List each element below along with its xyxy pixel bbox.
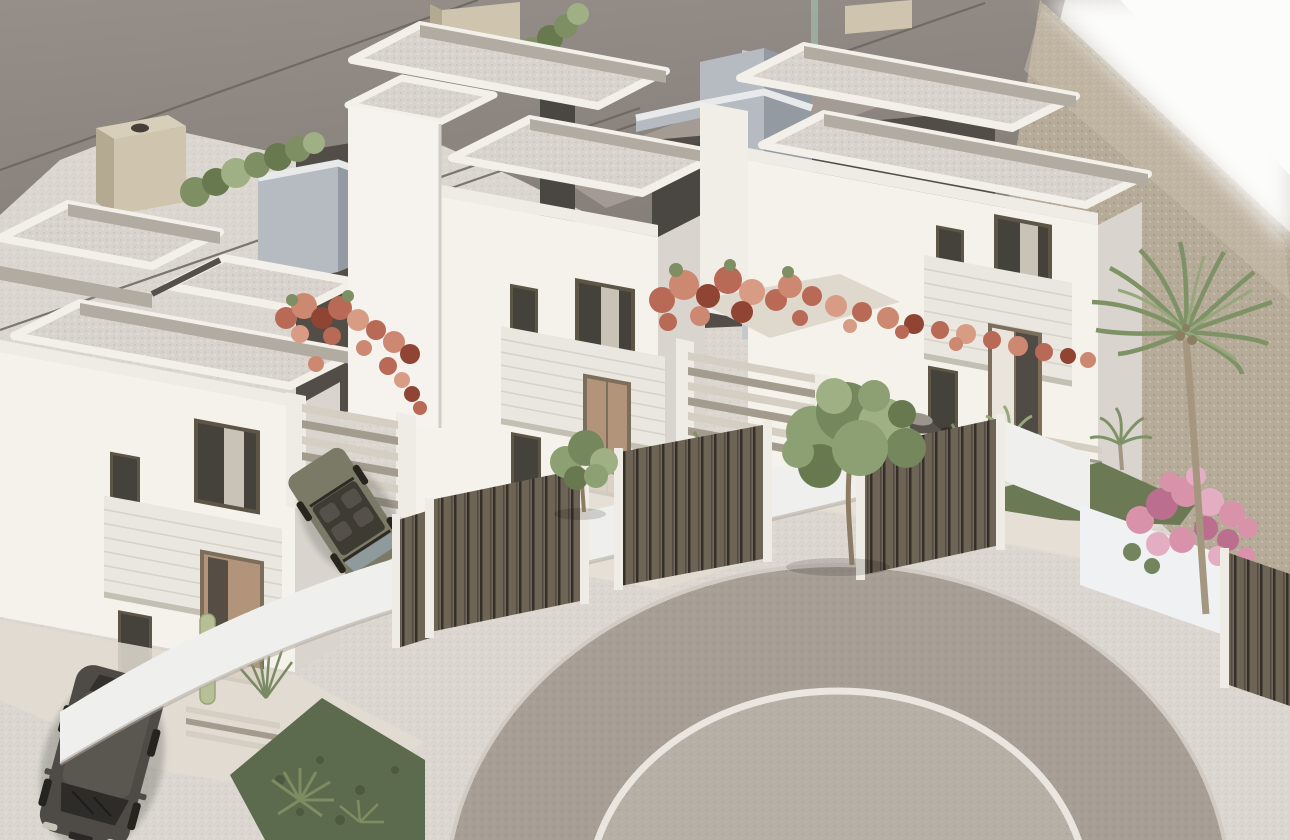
tree-shadow [554, 508, 606, 520]
stair-flank [396, 412, 416, 520]
fence-right-planter [1226, 552, 1290, 706]
chimney-vent [131, 124, 149, 133]
fence-post [392, 514, 400, 648]
tree-shadow [786, 558, 890, 576]
fence-post [763, 420, 772, 562]
curtain [224, 428, 244, 508]
fence-post [1220, 548, 1229, 688]
chimney-front [114, 126, 186, 215]
upper-tall-window [194, 418, 260, 514]
gate-middle-driveway [620, 424, 768, 586]
stair-tower-face [348, 105, 440, 430]
fence-post [996, 414, 1005, 550]
palm-coconut [1182, 324, 1190, 332]
chimney-side [96, 128, 114, 215]
glass-balustrade [811, 0, 818, 48]
palm-coconut [1175, 331, 1185, 341]
architectural-render [0, 0, 1290, 840]
render-canvas [0, 0, 1290, 840]
chimney-left [96, 115, 186, 215]
fence-post [425, 498, 434, 638]
palm-coconut [1187, 335, 1197, 345]
